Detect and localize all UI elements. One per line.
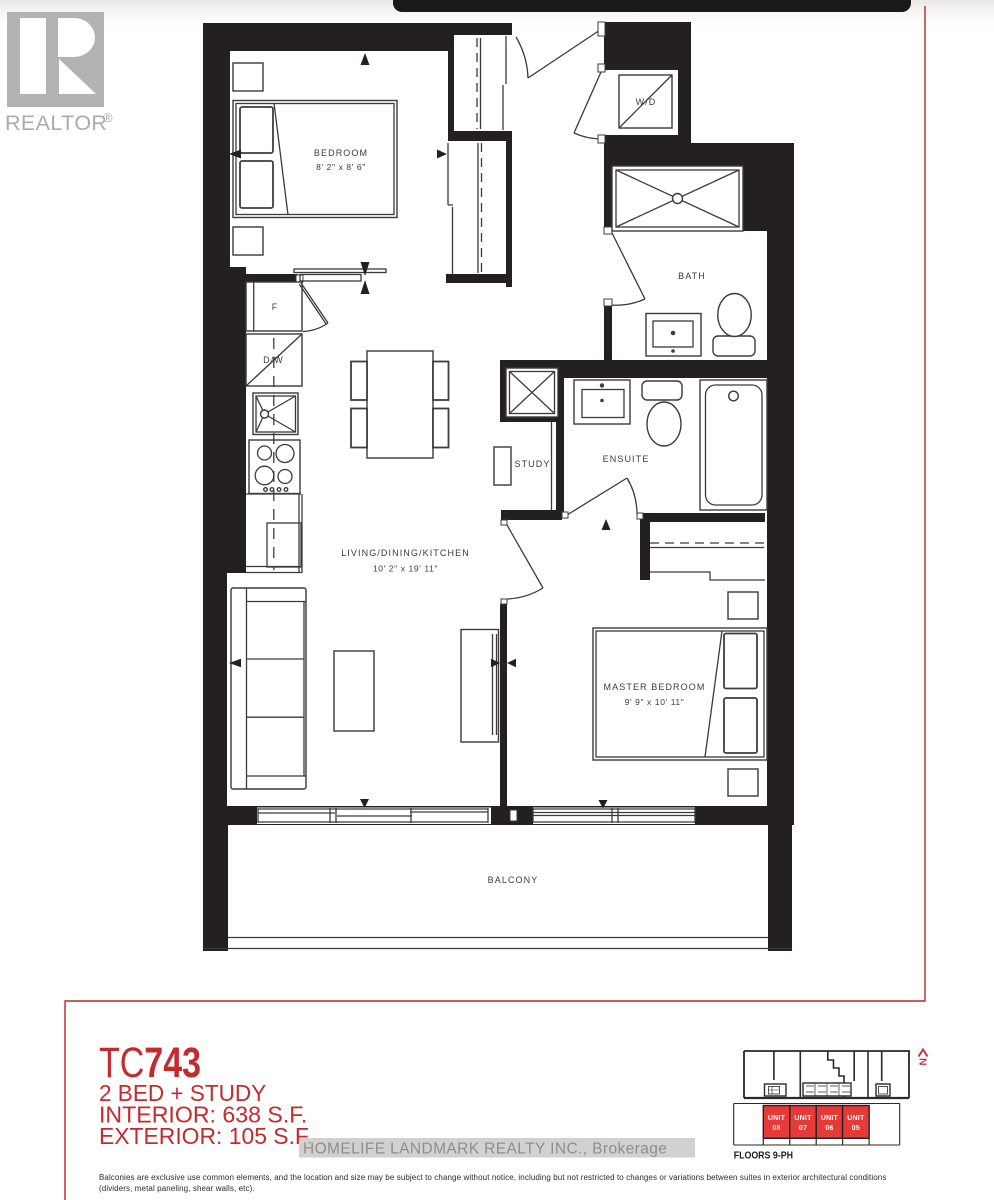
svg-text:ENSUITE: ENSUITE (603, 454, 650, 464)
svg-text:UNIT: UNIT (847, 1115, 865, 1122)
svg-text:N: N (917, 1058, 929, 1066)
svg-text:06: 06 (825, 1125, 833, 1132)
svg-text:BALCONY: BALCONY (488, 875, 539, 885)
svg-text:BATH: BATH (678, 271, 706, 281)
svg-text:10' 2" x 19' 11": 10' 2" x 19' 11" (373, 564, 438, 574)
svg-text:EXTERIOR: 105 S.F.: EXTERIOR: 105 S.F. (99, 1123, 313, 1149)
svg-text:07: 07 (799, 1125, 807, 1132)
svg-text:F: F (272, 302, 279, 312)
svg-text:08: 08 (772, 1125, 780, 1132)
svg-text:UNIT: UNIT (821, 1115, 839, 1122)
svg-text:Balconies are exclusive use co: Balconies are exclusive use common eleme… (99, 1173, 886, 1182)
svg-text:REALTOR: REALTOR (5, 111, 107, 135)
svg-text:UNIT: UNIT (768, 1115, 786, 1122)
svg-text:FLOORS 9-PH: FLOORS 9-PH (734, 1150, 793, 1162)
svg-text:LIVING/DINING/KITCHEN: LIVING/DINING/KITCHEN (341, 548, 470, 558)
svg-text:(dividers, metal paneling, she: (dividers, metal paneling, shear walls, … (99, 1184, 255, 1193)
svg-text:HOMELIFE LANDMARK REALTY INC.,: HOMELIFE LANDMARK REALTY INC., Brokerage (303, 1141, 667, 1158)
svg-text:BEDROOM: BEDROOM (314, 148, 368, 158)
svg-text:W/D: W/D (636, 97, 657, 107)
svg-text:05: 05 (852, 1125, 860, 1132)
svg-text:9' 9" x 10' 11": 9' 9" x 10' 11" (625, 697, 685, 707)
svg-text:MASTER BEDROOM: MASTER BEDROOM (604, 682, 706, 692)
svg-text:UNIT: UNIT (794, 1115, 812, 1122)
svg-text:®: ® (103, 110, 113, 125)
svg-text:STUDY: STUDY (514, 459, 550, 469)
svg-text:8' 2" x 8' 6": 8' 2" x 8' 6" (316, 162, 366, 172)
